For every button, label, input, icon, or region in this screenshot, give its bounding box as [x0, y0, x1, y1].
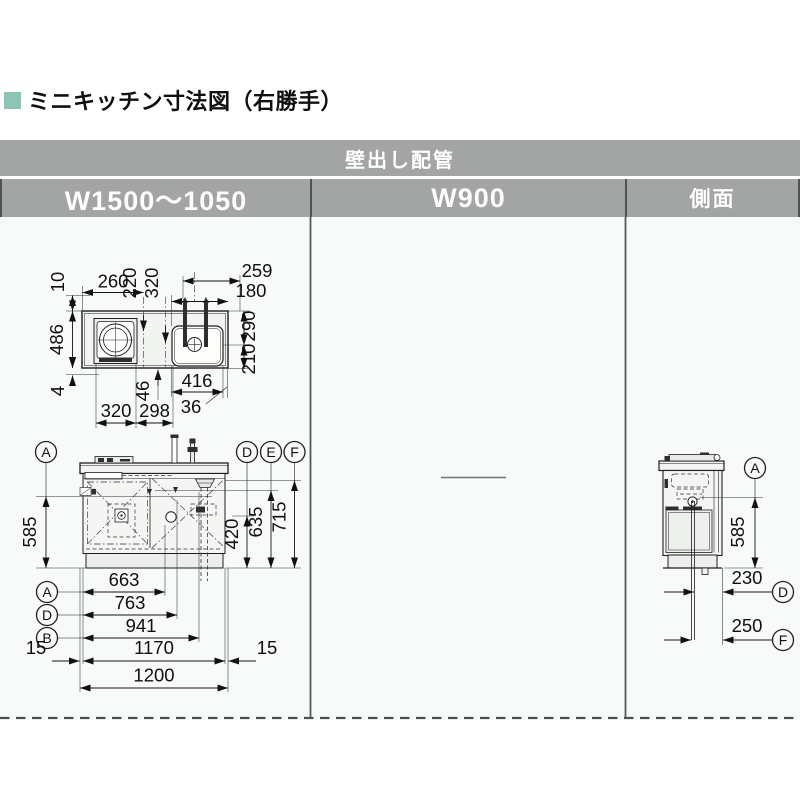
side-ref-f: F	[773, 630, 794, 651]
col-header-side: 側面	[625, 179, 798, 217]
dim-220: 220	[119, 268, 140, 299]
ref-a-side: A	[750, 460, 760, 476]
dim-15-left: 15	[26, 637, 47, 658]
dim-635: 635	[245, 507, 266, 538]
dim-663: 663	[109, 569, 140, 590]
dim-4: 4	[47, 386, 68, 396]
side-ref-a: A	[745, 458, 766, 498]
side-ref-d: D	[773, 582, 794, 603]
dim-298: 298	[139, 400, 170, 421]
dim-290: 290	[238, 311, 259, 342]
front-view: A D E F A	[19, 435, 305, 693]
page-title-row: ミニキッチン寸法図（右勝手）	[4, 84, 343, 116]
dim-259: 259	[242, 260, 273, 281]
dim-320-top: 320	[141, 268, 162, 299]
dim-230: 230	[732, 567, 763, 588]
banner-wall-piping: 壁出し配管	[0, 140, 800, 176]
col-header-w1500-1050: W1500～1050	[2, 179, 310, 217]
dim-420: 420	[221, 519, 242, 550]
dim-1170: 1170	[134, 637, 174, 658]
ref-a-bottom: A	[42, 584, 52, 600]
front-pipes	[171, 435, 198, 464]
plan-view: 260 10 486 4 220 320 259 180 290 210 416…	[46, 260, 272, 428]
burner-grill	[99, 358, 132, 363]
dim-941: 941	[126, 615, 157, 636]
dim-486: 486	[46, 324, 67, 355]
diagram-canvas: 260 10 486 4 220 320 259 180 290 210 416…	[0, 0, 800, 800]
front-outlet-circle	[166, 512, 176, 522]
dim-416: 416	[182, 370, 213, 391]
col-header-w900: W900	[310, 179, 625, 217]
plan-burner	[94, 319, 137, 364]
dim-36: 36	[181, 396, 202, 417]
dim-1200: 1200	[133, 665, 174, 686]
ref-d-top: D	[242, 444, 252, 460]
dim-763: 763	[115, 592, 146, 613]
ref-a-top: A	[41, 444, 51, 460]
dim-15-right: 15	[257, 637, 278, 658]
dim-10: 10	[47, 272, 68, 293]
dim-46: 46	[132, 381, 153, 402]
dim-585-front: 585	[19, 517, 40, 548]
dim-180: 180	[236, 280, 267, 301]
page-title: ミニキッチン寸法図（右勝手）	[28, 84, 343, 116]
side-cabinet	[659, 453, 724, 641]
dim-250: 250	[732, 615, 763, 636]
ref-d-bottom: D	[42, 607, 52, 623]
side-door-panel	[666, 510, 712, 553]
dim-320-bottom: 320	[101, 400, 132, 421]
dim-715: 715	[269, 502, 290, 533]
dim-210: 210	[238, 344, 259, 375]
ref-f-side: F	[779, 632, 788, 648]
ref-d-side: D	[778, 584, 788, 600]
front-control-box	[85, 473, 122, 480]
dim-585-side: 585	[727, 517, 748, 548]
accent-square-icon	[4, 92, 21, 109]
column-header-row: W1500～1050 W900 側面	[0, 179, 800, 217]
ref-f-top: F	[290, 444, 299, 460]
front-cabinet	[80, 435, 228, 582]
side-view: A 585 230 250 D F	[659, 453, 794, 651]
ref-e-top: E	[266, 444, 275, 460]
